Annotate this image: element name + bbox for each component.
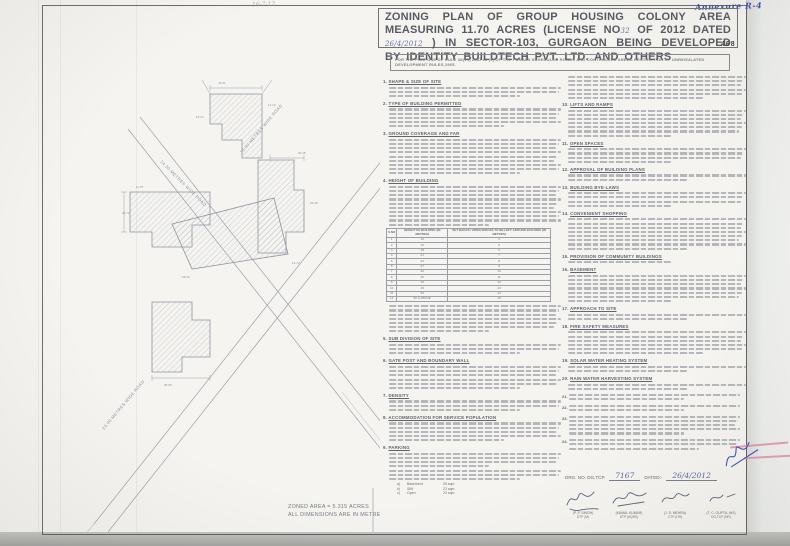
body-text-line: [568, 275, 746, 277]
body-text-line: [569, 439, 740, 441]
clause-section: 18. FIRE SAFETY MEASURES: [562, 324, 740, 355]
body-text-line: [389, 427, 559, 429]
clause-heading: 12. APPROVAL OF BUILDING PLANS: [562, 167, 740, 172]
body-text-line: [389, 461, 556, 463]
body-text-line: [389, 108, 561, 110]
body-text-line: [389, 224, 489, 226]
body-text-line: [568, 239, 739, 241]
dimension-value: 10.67: [136, 185, 144, 189]
body-text-line: [568, 218, 746, 220]
note-body: [569, 416, 740, 437]
body-text-line: [389, 121, 561, 123]
clause-title: PROVISION OF COMMUNITY BUILDINGS: [570, 254, 662, 259]
body-text-line: [389, 211, 561, 213]
body-text-line: [389, 215, 559, 217]
body-text-line: [389, 95, 520, 97]
clause-title: OPEN SPACES: [570, 141, 604, 146]
body-text-line: [389, 348, 559, 350]
body-text-line: [389, 143, 559, 145]
body-text-line: [389, 314, 556, 316]
body-text-line: [569, 405, 740, 407]
clause-title: TYPE OF BUILDING PERMITTED: [388, 101, 461, 106]
body-text-line: [569, 420, 738, 422]
dimension-value: 18.29: [182, 275, 190, 279]
dimension-value: 24.38: [310, 201, 318, 205]
title-block: ZONING PLAN OF GROUP HOUSING COLONY AREA…: [378, 8, 738, 48]
body-text-line: [568, 340, 741, 342]
body-text-line: [389, 465, 489, 467]
handwritten-license-no: 32: [620, 27, 629, 35]
dimension-value: 13.72: [292, 261, 300, 265]
handwritten-signature: [564, 487, 602, 511]
note-number: 23.: [562, 416, 569, 437]
clause-number: 13.: [562, 185, 570, 190]
body-text-line: [389, 379, 561, 381]
purpose-note: FOR THE PURPOSE OF RULE 38(vii) AND 48 (…: [390, 54, 730, 71]
dated-label: DATED:-: [644, 475, 662, 480]
clause-title: RAIN WATER HARVESTING SYSTEM: [570, 376, 652, 381]
body-text-line: [389, 139, 561, 141]
body-text-line: [568, 384, 746, 386]
clause-section: 2. TYPE OF BUILDING PERMITTED: [383, 101, 555, 127]
body-text-line: [568, 93, 742, 95]
body-text-line: [389, 435, 561, 437]
zoned-area-note: ZONED AREA = 5.315 ACRES: [288, 504, 369, 510]
body-text-line: [569, 428, 740, 430]
clause-title: GATE POST AND BOUNDARY WALL: [388, 358, 469, 363]
clause-heading: 11. OPEN SPACES: [562, 141, 740, 146]
body-text-line: [389, 409, 520, 411]
clause-heading: 7. DENSITY: [383, 393, 555, 398]
note-number: 22.: [562, 405, 569, 413]
note-number: 24.: [562, 439, 569, 452]
clause-number: 19.: [562, 358, 570, 363]
clause-section: 7. DENSITY: [383, 393, 555, 411]
body-text-line: [389, 478, 520, 480]
table-header: HEIGHT OF BUILDING (IN METRES): [397, 228, 448, 237]
body-text-line: [568, 261, 671, 263]
body-text-line: [389, 190, 559, 192]
handwritten-license-date: 26/4/2012: [385, 40, 423, 48]
body-text-line: [568, 336, 744, 338]
body-text-line: [389, 203, 558, 205]
clause-number: 11.: [562, 141, 570, 146]
dimensions-unit-note: ALL DIMENSIONS ARE IN METRES: [288, 512, 380, 518]
body-text-line: [389, 431, 556, 433]
body-text-line: [568, 352, 703, 354]
body-text-line: [389, 344, 561, 346]
signatory-designation: DG,TCP (HR): [700, 515, 742, 519]
clause-section: 19. SOLAR WATER HEATING SYSTEM: [562, 358, 740, 372]
body-text-line: [568, 126, 742, 128]
body-text-line: [389, 91, 559, 93]
title-text-part2: OF 2012 DATED: [637, 24, 731, 36]
handwritten-signature: [656, 487, 694, 511]
body-text-line: [568, 118, 741, 120]
parking-list-text: c): [397, 491, 407, 496]
body-text-line: [389, 439, 504, 441]
clause-heading: 10. LIFTS AND RAMPS: [562, 102, 740, 107]
clause-section: 4. HEIGHT OF BUILDINGS.NOHEIGHT OF BUILD…: [383, 178, 555, 332]
clause-title: SOLAR WATER HEATING SYSTEM: [570, 358, 647, 363]
parking-list-text: Open: [407, 491, 443, 496]
body-text-line: [389, 470, 561, 472]
dimension-value: 12.19: [268, 103, 276, 107]
body-text-line: [568, 205, 671, 207]
general-note: 22.: [562, 405, 740, 413]
table-header: SET BACKS / OPEN SPACES TO BE LEFT AROUN…: [448, 228, 551, 237]
handwritten-dated-value: 26/4/2012: [666, 471, 716, 481]
clause-section: 14. CONVENIENT SHOPPING: [562, 211, 740, 250]
clause-title: APPROVAL OF BUILDING PLANS: [570, 167, 645, 172]
body-text-line: [568, 348, 742, 350]
body-text-line: [568, 89, 746, 91]
clause-heading: 9. PARKING: [383, 445, 555, 450]
body-text-line: [389, 168, 559, 170]
body-text-line: [568, 110, 746, 112]
signatory-designation: DTP (HQRS): [608, 515, 650, 519]
clause-section: 6. GATE POST AND BOUNDARY WALL: [383, 358, 555, 389]
body-text-line: [568, 122, 746, 124]
body-text-line: [389, 387, 520, 389]
clause-section: 13. BUILDING BYE-LAWS: [562, 185, 740, 207]
clause-heading: 13. BUILDING BYE-LAWS: [562, 185, 740, 190]
body-text-line: [568, 135, 671, 137]
body-text-line: [568, 287, 746, 289]
body-text-line: [389, 352, 520, 354]
signature-cell: (J. S. MEHRA)CTP (HR): [654, 487, 696, 519]
body-text-line: [569, 416, 740, 418]
handwritten-signature: [702, 487, 740, 511]
clause-title: FIRE SAFETY MEASURES: [570, 324, 629, 329]
clause-number: 14.: [562, 211, 570, 216]
table-row: 1250 & ABOVE15: [387, 296, 551, 301]
body-text-line: [569, 424, 735, 426]
clause-title: GROUND COVERAGE AND FAR: [388, 131, 459, 136]
dimension-value: 30.48: [298, 151, 306, 155]
body-text-line: [569, 398, 684, 400]
clause-section: 12. APPROVAL OF BUILDING PLANS: [562, 167, 740, 181]
zoning-clauses-column-2: 10. LIFTS AND RAMPS11. OPEN SPACES12. AP…: [562, 76, 740, 454]
zoning-clauses-column-1: 1. SHAPE & SIZE OF SITE2. TYPE OF BUILDI…: [383, 76, 555, 500]
clause-heading: 16. BASEMENT: [562, 267, 740, 272]
clause-section: 17. APPROACH TO SITE: [562, 306, 740, 320]
clause-title: BASEMENT: [570, 267, 596, 272]
body-text-line: [389, 474, 559, 476]
general-note: 24.: [562, 439, 740, 452]
signatory-designation: CTP (HR): [654, 515, 696, 519]
clause-heading: 14. CONVENIENT SHOPPING: [562, 211, 740, 216]
body-text-line: [568, 161, 671, 163]
body-text-line: [389, 207, 554, 209]
body-text-line: [568, 248, 687, 250]
clause-heading: 20. RAIN WATER HARVESTING SYSTEM: [562, 376, 740, 381]
body-text-line: [568, 157, 741, 159]
clause-heading: 1. SHAPE & SIZE OF SITE: [383, 79, 555, 84]
body-text-line: [568, 279, 744, 281]
zoned-plot-shapes: [130, 94, 304, 372]
body-text-line: [389, 164, 561, 166]
body-text-line: [389, 400, 561, 402]
general-note: 21.: [562, 394, 740, 402]
body-text-line: [389, 172, 520, 174]
body-text-line: [568, 388, 687, 390]
dimension-value: 45.72: [122, 211, 130, 215]
body-text-line: [568, 227, 741, 229]
body-text-line: [389, 151, 561, 153]
sheet-stamp-number: 468: [721, 41, 736, 48]
signature-cell: (T. C. GUPTA, IAS)DG,TCP (HR): [700, 487, 742, 519]
parking-norms-list: a)Basement25 sqmb)Stilt23 sqmc)Open23 sq…: [397, 482, 555, 496]
dimension-value: 35.05: [164, 383, 172, 387]
body-text-line: [389, 198, 561, 200]
note-body: [569, 394, 740, 402]
parking-list-item: c)Open23 sqm: [397, 491, 555, 496]
body-text-line: [389, 194, 556, 196]
handwritten-drg-no: 7167: [609, 471, 640, 481]
clause-number: 18.: [562, 324, 570, 329]
body-text-line: [568, 192, 746, 194]
body-text-line: [389, 405, 559, 407]
body-text-line: [568, 196, 744, 198]
clause-title: APPROACH TO SITE: [570, 306, 617, 311]
body-text-line: [389, 156, 558, 158]
body-text-line: [568, 148, 746, 150]
clause-heading: 15. PROVISION OF COMMUNITY BUILDINGS: [562, 254, 740, 259]
drawing-number-line: DRG. NO. DG,TCP. 7167 DATED:- 26/4/2012: [565, 470, 741, 480]
drg-no-label: DRG. NO. DG,TCP.: [565, 475, 605, 480]
clause-section: 8. ACCOMMODATION FOR SERVICE POPULATION: [383, 415, 555, 441]
body-text-line: [568, 283, 741, 285]
clause-section: 5. SUB DIVISION OF SITE: [383, 336, 555, 354]
body-text-line: [568, 84, 741, 86]
clause-title: SHAPE & SIZE OF SITE: [388, 79, 441, 84]
clause-heading: 17. APPROACH TO SITE: [562, 306, 740, 311]
body-text-line: [568, 292, 742, 294]
clause-number: 16.: [562, 267, 570, 272]
body-text-line: [568, 344, 746, 346]
clause-title: HEIGHT OF BUILDING: [388, 178, 438, 183]
body-text-line: [569, 448, 699, 450]
handwritten-signature: [610, 487, 648, 511]
body-text-line: [568, 179, 687, 181]
body-text-line: [389, 370, 559, 372]
handwritten-margin-signature: [720, 438, 766, 468]
body-text-line: [389, 453, 561, 455]
clause-title: LIFTS AND RAMPS: [570, 102, 613, 107]
body-text-line: [389, 147, 556, 149]
clause-title: DENSITY: [388, 393, 408, 398]
clause-title: SUB DIVISION OF SITE: [388, 336, 440, 341]
paper-fold-line: [38, 0, 39, 533]
signature-cell: (P. P. SINGH)DTP (M): [562, 487, 604, 519]
body-text-line: [389, 318, 561, 320]
clause-title: ACCOMMODATION FOR SERVICE POPULATION: [388, 415, 496, 420]
body-text-line: [568, 318, 687, 320]
scanned-zoning-plan-document: Annexure R-4 16-7-12 ZONING PLAN OF GROU…: [0, 0, 790, 546]
clause-number: 15.: [562, 254, 570, 259]
body-text-line: [569, 394, 740, 396]
body-text-line: [389, 330, 489, 332]
body-text-line: [389, 422, 561, 424]
handwritten-pencil-note: 16-7-12: [252, 1, 275, 9]
body-text-line: [389, 374, 556, 376]
table-cell: 50 & ABOVE: [397, 296, 448, 301]
body-text-line: [389, 309, 559, 311]
body-text-line: [568, 80, 744, 82]
body-text-line: [568, 231, 746, 233]
body-text-line: [389, 117, 556, 119]
clause-heading: 2. TYPE OF BUILDING PERMITTED: [383, 101, 555, 106]
table-cell: 12: [387, 296, 397, 301]
clause-section: 10. LIFTS AND RAMPS: [562, 102, 740, 137]
clause-title: CONVENIENT SHOPPING: [570, 211, 627, 216]
clause-number: 12.: [562, 167, 570, 172]
clause-section: 9. PARKINGa)Basement25 sqmb)Stilt23 sqmc…: [383, 445, 555, 496]
body-text-line: [389, 322, 558, 324]
note-body: [569, 405, 740, 413]
body-text-line: [389, 125, 504, 127]
road-lines: [62, 117, 380, 532]
clause-heading: 5. SUB DIVISION OF SITE: [383, 336, 555, 341]
body-text-line: [389, 383, 558, 385]
clause-heading: 3. GROUND COVERAGE AND FAR: [383, 131, 555, 136]
signatory-designation: DTP (M): [562, 515, 604, 519]
body-text-line: [568, 201, 741, 203]
body-text-line: [568, 97, 703, 99]
note-body: [569, 439, 740, 452]
body-text-line: [568, 366, 746, 368]
body-text-line: [568, 130, 739, 132]
dimension-value: 15.24: [196, 115, 204, 119]
clause-continuation: [562, 76, 740, 99]
table-header: S.NO: [387, 228, 397, 237]
signature-block: (P. P. SINGH)DTP (M)(KAMAL KUMAR)DTP (HQ…: [562, 487, 742, 519]
note-number: 21.: [562, 394, 569, 402]
clause-section: 16. BASEMENT: [562, 267, 740, 302]
body-text-line: [569, 409, 684, 411]
body-text-line: [568, 300, 671, 302]
clause-section: 15. PROVISION OF COMMUNITY BUILDINGS: [562, 254, 740, 264]
body-text-line: [568, 296, 739, 298]
clause-heading: 6. GATE POST AND BOUNDARY WALL: [383, 358, 555, 363]
body-text-line: [389, 326, 554, 328]
body-text-line: [568, 243, 746, 245]
table-cell: 15: [448, 296, 551, 301]
body-text-line: [568, 314, 746, 316]
body-text-line: [389, 366, 561, 368]
clause-heading: 19. SOLAR WATER HEATING SYSTEM: [562, 358, 740, 363]
parking-list-text: 23 sqm: [443, 491, 454, 496]
clause-number: 17.: [562, 306, 570, 311]
road-label-sw: 24.00 METRES WIDE ROAD: [101, 379, 145, 431]
clause-number: 10.: [562, 102, 570, 107]
body-text-line: [568, 235, 742, 237]
body-text-line: [389, 87, 561, 89]
clause-title: BUILDING BYE-LAWS: [570, 185, 619, 190]
body-text-line: [568, 76, 746, 78]
clause-section: 3. GROUND COVERAGE AND FAR: [383, 131, 555, 174]
body-text-line: [568, 331, 746, 333]
body-text-line: [389, 113, 559, 115]
body-text-line: [568, 114, 744, 116]
signature-cell: (KAMAL KUMAR)DTP (HQRS): [608, 487, 650, 519]
clause-title: PARKING: [388, 445, 409, 450]
height-setback-table: S.NOHEIGHT OF BUILDING (IN METRES)SET BA…: [386, 228, 551, 302]
clause-heading: 18. FIRE SAFETY MEASURES: [562, 324, 740, 329]
clause-section: 11. OPEN SPACES: [562, 141, 740, 163]
clause-heading: 8. ACCOMMODATION FOR SERVICE POPULATION: [383, 415, 555, 420]
body-text-line: [568, 223, 744, 225]
body-text-line: [568, 174, 746, 176]
general-note: 23.: [562, 416, 740, 437]
body-text-line: [389, 457, 559, 459]
body-text-line: [389, 160, 554, 162]
body-text-line: [569, 443, 738, 445]
body-text-line: [389, 219, 561, 221]
clause-number: 20.: [562, 376, 570, 381]
dimension-value: 43.81: [218, 81, 226, 85]
body-text-line: [389, 305, 561, 307]
clause-section: 20. RAIN WATER HARVESTING SYSTEM: [562, 376, 740, 390]
clause-section: 1. SHAPE & SIZE OF SITE: [383, 79, 555, 97]
site-plan-drawing: 24.00 METRES WIDE ROAD 75.00 METRES WIDE…: [42, 62, 380, 532]
body-text-line: [568, 152, 744, 154]
clause-heading: 4. HEIGHT OF BUILDING: [383, 178, 555, 183]
body-text-line: [568, 370, 687, 372]
body-text-line: [569, 432, 684, 434]
body-text-line: [389, 186, 561, 188]
